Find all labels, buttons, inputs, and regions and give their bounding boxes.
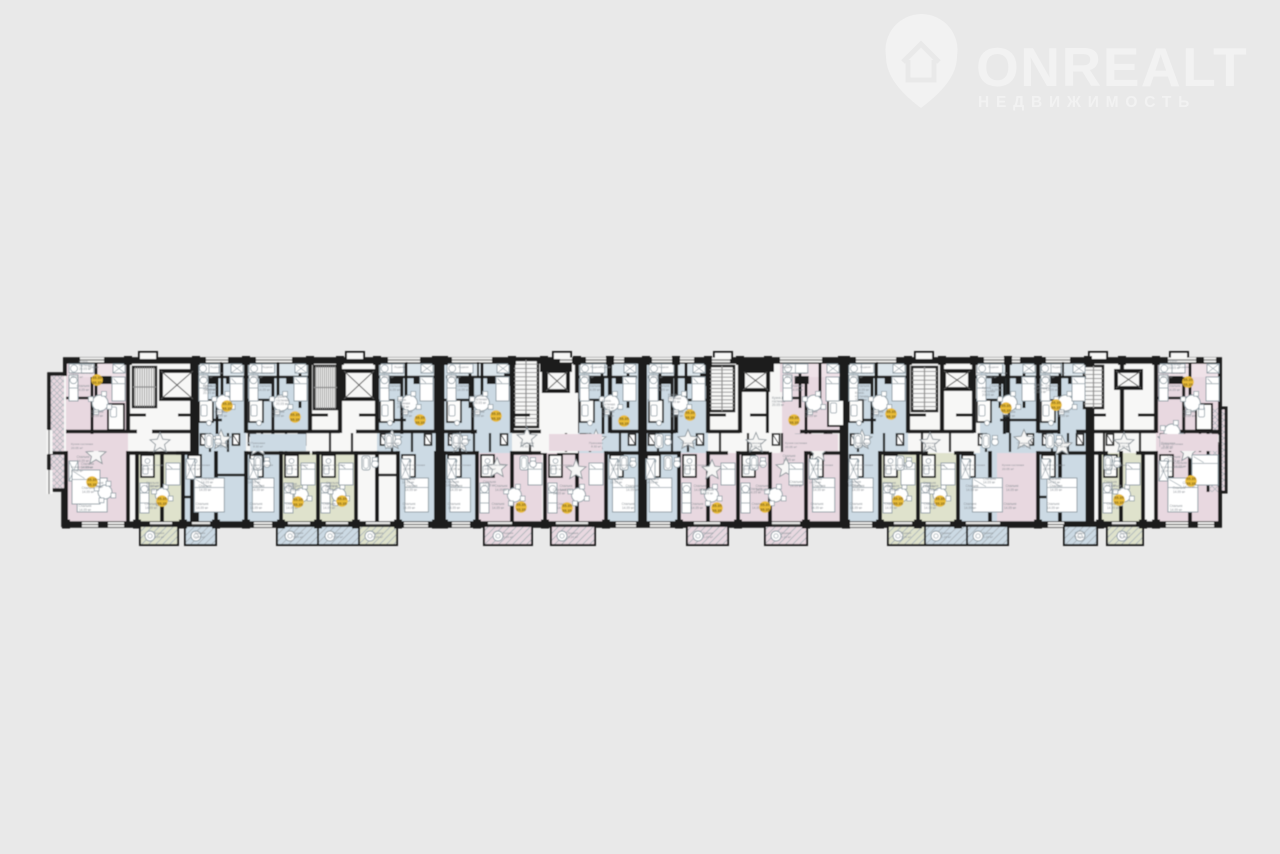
svg-text:55.35: 55.35 (290, 413, 300, 417)
svg-text:14.09 м²: 14.09 м² (790, 484, 802, 488)
svg-text:20.05 м²: 20.05 м² (201, 375, 213, 379)
svg-text:20.05 м²: 20.05 м² (188, 467, 200, 471)
svg-text:20.05 м²: 20.05 м² (449, 467, 461, 471)
svg-text:20.05 м²: 20.05 м² (474, 401, 486, 405)
svg-text:8.30 м²: 8.30 м² (1057, 445, 1067, 449)
svg-text:55.35: 55.35 (222, 407, 232, 411)
svg-text:5.24 м²: 5.24 м² (154, 535, 164, 539)
svg-text:55.35: 55.35 (1051, 406, 1061, 410)
svg-text:5.24 м²: 5.24 м² (568, 535, 578, 539)
svg-text:55.35: 55.35 (87, 483, 97, 487)
svg-text:20.05 м²: 20.05 м² (397, 405, 409, 409)
svg-text:20.05 м²: 20.05 м² (286, 467, 298, 471)
svg-text:14.09 м²: 14.09 м² (288, 488, 300, 492)
svg-text:55.35: 55.35 (1186, 477, 1196, 481)
svg-text:14.09 м²: 14.09 м² (983, 481, 995, 485)
svg-text:55.35: 55.35 (290, 418, 300, 422)
svg-text:20.05 м²: 20.05 м² (651, 375, 663, 379)
svg-text:8.30 м²: 8.30 м² (857, 445, 867, 449)
svg-text:20.05 м²: 20.05 м² (1043, 375, 1055, 379)
svg-text:14.09 м²: 14.09 м² (610, 481, 622, 485)
svg-text:14.09 м²: 14.09 м² (1170, 508, 1182, 512)
svg-text:Лоджия: Лоджия (658, 365, 669, 369)
svg-text:20.05 м²: 20.05 м² (963, 467, 975, 471)
svg-text:14.09 м²: 14.09 м² (215, 414, 227, 418)
svg-text:20.05 м²: 20.05 м² (403, 467, 415, 471)
svg-text:14.09 м²: 14.09 м² (77, 388, 89, 392)
svg-text:20.05 м²: 20.05 м² (582, 375, 594, 379)
svg-text:55.35: 55.35 (1001, 404, 1011, 408)
svg-text:20.05 м²: 20.05 м² (1161, 469, 1173, 473)
svg-text:20.05 м²: 20.05 м² (1043, 467, 1055, 471)
svg-text:55.35: 55.35 (337, 497, 347, 501)
svg-text:14.09 м²: 14.09 м² (588, 388, 600, 392)
svg-text:55.35: 55.35 (562, 504, 572, 508)
svg-text:14.09 м²: 14.09 м² (850, 506, 862, 510)
svg-text:14.09 м²: 14.09 м² (79, 508, 91, 512)
svg-text:8.30 м²: 8.30 м² (387, 445, 397, 449)
svg-text:20.05 м²: 20.05 м² (449, 375, 461, 379)
svg-text:55.35: 55.35 (87, 478, 97, 482)
svg-text:14.09 м²: 14.09 м² (1183, 414, 1195, 418)
svg-text:55.35: 55.35 (491, 412, 501, 416)
svg-text:14.09 м²: 14.09 м² (1003, 414, 1015, 418)
svg-text:14.09 м²: 14.09 м² (1174, 465, 1186, 469)
svg-text:20.05 м²: 20.05 м² (923, 467, 935, 471)
svg-text:20.05 м²: 20.05 м² (1002, 467, 1014, 471)
svg-text:14.09 м²: 14.09 м² (1004, 506, 1016, 510)
svg-text:55.35: 55.35 (893, 497, 903, 501)
svg-text:20.05 м²: 20.05 м² (1161, 375, 1173, 379)
svg-text:55.35: 55.35 (619, 417, 629, 421)
svg-text:Лоджия: Лоджия (860, 365, 871, 369)
svg-text:14.09 м²: 14.09 м² (258, 388, 270, 392)
svg-text:55.35: 55.35 (157, 497, 167, 501)
svg-text:Лоджия: Лоджия (1178, 365, 1189, 369)
svg-text:20.05 м²: 20.05 м² (251, 467, 263, 471)
svg-text:14.09 м²: 14.09 м² (405, 488, 417, 492)
svg-text:14.09 м²: 14.09 м² (622, 506, 634, 510)
svg-text:20.05 м²: 20.05 м² (71, 375, 83, 379)
svg-text:14.09 м²: 14.09 м² (990, 388, 1002, 392)
svg-text:14.09 м²: 14.09 м² (805, 414, 817, 418)
svg-text:20.05 м²: 20.05 м² (811, 467, 823, 471)
svg-text:Лоджия: Лоджия (1052, 365, 1063, 369)
svg-text:14.09 м²: 14.09 м² (560, 488, 572, 492)
svg-text:14.09 м²: 14.09 м² (448, 506, 460, 510)
svg-text:14.09 м²: 14.09 м² (885, 506, 897, 510)
svg-text:55.35: 55.35 (92, 376, 102, 380)
svg-text:55.35: 55.35 (516, 503, 526, 507)
svg-text:14.09 м²: 14.09 м² (388, 388, 400, 392)
svg-text:20.05 м²: 20.05 м² (323, 467, 335, 471)
svg-text:Лоджия: Лоджия (782, 365, 793, 369)
svg-text:14.09 м²: 14.09 м² (472, 414, 484, 418)
svg-text:14.09 м²: 14.09 м² (492, 506, 504, 510)
svg-text:8.30 м²: 8.30 м² (1163, 445, 1173, 449)
svg-text:5.24 м²: 5.24 м² (333, 535, 343, 539)
svg-text:14.09 м²: 14.09 м² (1168, 459, 1180, 463)
svg-text:8.30 м²: 8.30 м² (217, 445, 227, 449)
svg-text:20.05 м²: 20.05 м² (885, 467, 897, 471)
svg-text:5.24 м²: 5.24 м² (1075, 535, 1085, 539)
svg-text:55.35: 55.35 (337, 502, 347, 506)
svg-text:5.24 м²: 5.24 м² (703, 535, 713, 539)
svg-text:55.35: 55.35 (293, 498, 303, 502)
svg-text:55.35: 55.35 (886, 410, 896, 414)
svg-text:14.09 м²: 14.09 м² (964, 506, 976, 510)
svg-text:8.30 м²: 8.30 м² (1119, 445, 1129, 449)
svg-text:14.09 м²: 14.09 м² (691, 506, 703, 510)
svg-text:14.09 м²: 14.09 м² (196, 506, 208, 510)
svg-text:55.35: 55.35 (886, 415, 896, 419)
svg-text:14.09 м²: 14.09 м² (887, 488, 899, 492)
svg-text:Лоджия: Лоджия (262, 365, 273, 369)
svg-text:55.35: 55.35 (1051, 401, 1061, 405)
svg-text:14.09 м²: 14.09 м² (91, 414, 103, 418)
svg-text:8.30 м²: 8.30 м² (751, 445, 761, 449)
svg-text:14.09 м²: 14.09 м² (250, 506, 262, 510)
svg-text:14.09 м²: 14.09 м² (671, 414, 683, 418)
svg-text:20.05 м²: 20.05 м² (743, 467, 755, 471)
svg-text:8.30 м²: 8.30 м² (1019, 445, 1029, 449)
svg-text:55.35: 55.35 (293, 503, 303, 507)
svg-text:55.35: 55.35 (893, 502, 903, 506)
svg-text:20.05 м²: 20.05 м² (71, 446, 83, 450)
svg-text:20.05 м²: 20.05 м² (985, 375, 997, 379)
svg-text:55.35: 55.35 (1183, 383, 1193, 387)
svg-text:14.09 м²: 14.09 м² (82, 490, 94, 494)
svg-text:20.05 м²: 20.05 м² (785, 375, 797, 379)
svg-text:14.09 м²: 14.09 м² (1107, 506, 1119, 510)
svg-text:14.09 м²: 14.09 м² (852, 488, 864, 492)
svg-text:20.05 м²: 20.05 м² (276, 402, 288, 406)
svg-text:14.09 м²: 14.09 м² (495, 488, 507, 492)
svg-text:20.05 м²: 20.05 м² (142, 467, 154, 471)
svg-text:14.09 м²: 14.09 м² (81, 466, 93, 470)
svg-text:14.09 м²: 14.09 м² (199, 488, 211, 492)
svg-text:20.05 м²: 20.05 м² (785, 445, 797, 449)
svg-text:8.30 м²: 8.30 м² (522, 445, 532, 449)
svg-text:5.24 м²: 5.24 м² (941, 535, 951, 539)
svg-text:Лоджия: Лоджия (210, 365, 221, 369)
svg-text:14.09 м²: 14.09 м² (602, 414, 614, 418)
svg-text:14.09 м²: 14.09 м² (1168, 388, 1180, 392)
svg-text:14.09 м²: 14.09 м² (457, 388, 469, 392)
svg-text:Лоджия: Лоджия (600, 365, 611, 369)
svg-text:5.24 м²: 5.24 м² (195, 535, 205, 539)
svg-text:14.09 м²: 14.09 м² (252, 488, 264, 492)
svg-text:14.09 м²: 14.09 м² (966, 488, 978, 492)
svg-text:20.05 м²: 20.05 м² (251, 375, 263, 379)
svg-text:14.09 м²: 14.09 м² (553, 492, 565, 496)
svg-text:5.24 м²: 5.24 м² (983, 535, 993, 539)
svg-text:14.09 м²: 14.09 м² (450, 488, 462, 492)
svg-text:55.35: 55.35 (1183, 378, 1193, 382)
svg-text:20.05 м²: 20.05 м² (382, 375, 394, 379)
svg-text:20.05 м²: 20.05 м² (982, 393, 994, 397)
svg-text:14.09 м²: 14.09 м² (1006, 488, 1018, 492)
svg-text:55.35: 55.35 (1001, 409, 1011, 413)
svg-text:55.35: 55.35 (789, 421, 799, 425)
svg-text:20.05 м²: 20.05 м² (550, 467, 562, 471)
svg-text:14.09 м²: 14.09 м² (325, 488, 337, 492)
svg-text:14.09 м²: 14.09 м² (657, 388, 669, 392)
svg-text:14.09 м²: 14.09 м² (145, 506, 157, 510)
svg-text:55.35: 55.35 (516, 508, 526, 512)
svg-text:14.09 м²: 14.09 м² (646, 481, 658, 485)
svg-text:14.09 м²: 14.09 м² (403, 506, 415, 510)
svg-text:Лоджия: Лоджия (88, 365, 99, 369)
svg-text:55.35: 55.35 (619, 422, 629, 426)
svg-text:14.09 м²: 14.09 м² (811, 506, 823, 510)
svg-text:14.09 м²: 14.09 м² (791, 388, 803, 392)
svg-text:55.35: 55.35 (685, 411, 695, 415)
svg-text:20.05 м²: 20.05 м² (772, 403, 784, 407)
svg-text:55.35: 55.35 (760, 503, 770, 507)
svg-text:55.35: 55.35 (415, 421, 425, 425)
svg-text:Лоджия: Лоджия (458, 365, 469, 369)
svg-text:55.35: 55.35 (1114, 501, 1124, 505)
svg-text:НЕДВИЖИМОСТЬ: НЕДВИЖИМОСТЬ (978, 94, 1196, 111)
svg-text:8.30 м²: 8.30 м² (253, 445, 263, 449)
svg-text:5.24 м²: 5.24 м² (1120, 535, 1130, 539)
svg-text:5.24 м²: 5.24 м² (293, 535, 303, 539)
svg-text:55.35: 55.35 (712, 504, 722, 508)
svg-text:55.35: 55.35 (157, 502, 167, 506)
svg-text:55.35: 55.35 (222, 402, 232, 406)
svg-text:14.09 м²: 14.09 м² (756, 488, 768, 492)
svg-text:55.35: 55.35 (92, 381, 102, 385)
svg-text:14.09 м²: 14.09 м² (783, 458, 795, 462)
svg-text:5.24 м²: 5.24 м² (503, 535, 513, 539)
svg-text:14.09 м²: 14.09 м² (1173, 490, 1185, 494)
svg-text:55.35: 55.35 (1114, 496, 1124, 500)
svg-text:8.30 м²: 8.30 м² (591, 445, 601, 449)
svg-text:55.35: 55.35 (712, 509, 722, 513)
svg-text:20.05 м²: 20.05 м² (855, 398, 867, 402)
svg-text:20.05 м²: 20.05 м² (484, 467, 496, 471)
svg-text:14.09 м²: 14.09 м² (1057, 414, 1069, 418)
svg-text:55.35: 55.35 (1186, 482, 1196, 486)
svg-text:20.05 м²: 20.05 м² (851, 375, 863, 379)
svg-text:20.05 м²: 20.05 м² (1034, 390, 1046, 394)
svg-text:20.05 м²: 20.05 м² (71, 469, 83, 473)
svg-text:20.05 м²: 20.05 м² (1105, 467, 1117, 471)
svg-text:55.35: 55.35 (491, 417, 501, 421)
svg-text:14.09 м²: 14.09 м² (871, 414, 883, 418)
svg-text:14.09 м²: 14.09 м² (1046, 388, 1058, 392)
svg-text:55.35: 55.35 (789, 416, 799, 420)
svg-text:20.05 м²: 20.05 м² (851, 467, 863, 471)
svg-text:14.09 м²: 14.09 м² (147, 488, 159, 492)
svg-text:Лоджия: Лоджия (988, 365, 999, 369)
svg-text:8.30 м²: 8.30 м² (925, 445, 935, 449)
svg-text:14.09 м²: 14.09 м² (1050, 488, 1062, 492)
svg-text:ONREALT: ONREALT (976, 36, 1248, 98)
svg-text:14.09 м²: 14.09 м² (926, 488, 938, 492)
svg-text:8.30 м²: 8.30 м² (455, 445, 465, 449)
svg-text:14.09 м²: 14.09 м² (323, 506, 335, 510)
svg-text:20.05 м²: 20.05 м² (611, 467, 623, 471)
svg-text:Лоджия: Лоджия (394, 365, 405, 369)
svg-text:14.09 м²: 14.09 м² (694, 488, 706, 492)
svg-text:14.09 м²: 14.09 м² (813, 488, 825, 492)
svg-text:5.24 м²: 5.24 м² (901, 535, 911, 539)
svg-text:14.09 м²: 14.09 м² (77, 459, 89, 463)
svg-text:55.35: 55.35 (935, 497, 945, 501)
svg-text:14.09 м²: 14.09 м² (1047, 506, 1059, 510)
svg-text:55.35: 55.35 (935, 502, 945, 506)
svg-text:14.09 м²: 14.09 м² (204, 388, 216, 392)
svg-text:5.24 м²: 5.24 м² (373, 535, 383, 539)
svg-text:14.09 м²: 14.09 м² (400, 414, 412, 418)
svg-text:14.09 м²: 14.09 м² (1109, 488, 1121, 492)
svg-text:14.09 м²: 14.09 м² (701, 492, 713, 496)
svg-text:14.09 м²: 14.09 м² (272, 414, 284, 418)
svg-text:55.35: 55.35 (415, 416, 425, 420)
svg-text:55.35: 55.35 (685, 416, 695, 420)
svg-text:14.09 м²: 14.09 м² (857, 388, 869, 392)
svg-text:55.35: 55.35 (760, 508, 770, 512)
svg-text:5.24 м²: 5.24 м² (781, 535, 791, 539)
svg-text:8.30 м²: 8.30 м² (683, 445, 693, 449)
svg-text:14.09 м²: 14.09 м² (924, 506, 936, 510)
svg-text:14.09 м²: 14.09 м² (626, 488, 638, 492)
svg-text:55.35: 55.35 (562, 509, 572, 513)
svg-text:20.05 м²: 20.05 м² (668, 400, 680, 404)
svg-text:20.05 м²: 20.05 м² (684, 467, 696, 471)
svg-text:14.09 м²: 14.09 м² (483, 484, 495, 488)
